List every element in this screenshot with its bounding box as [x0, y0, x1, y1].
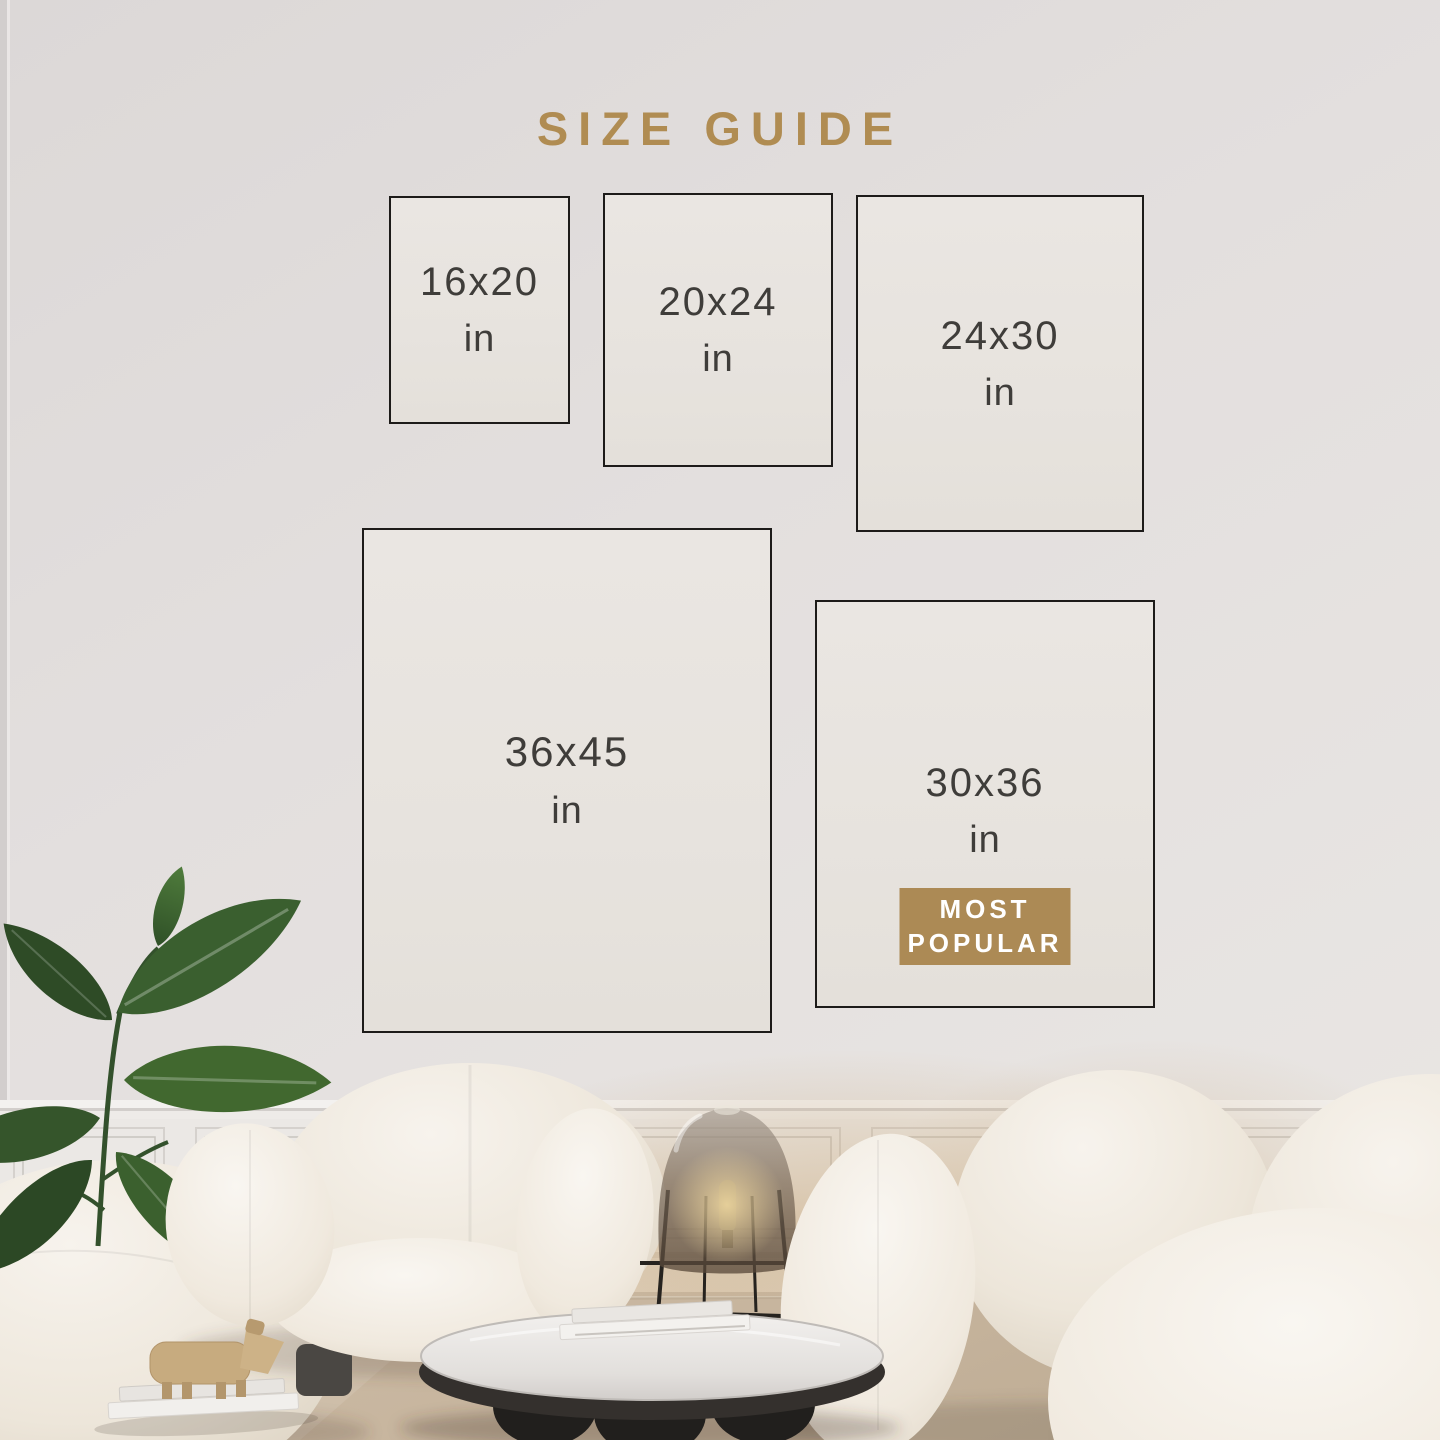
size-unit: in: [969, 820, 1001, 862]
size-unit: in: [551, 791, 583, 833]
size-dimensions: 30x36: [926, 760, 1045, 806]
size-unit: in: [984, 373, 1016, 415]
size-box-36x45: 36x45 in: [362, 528, 772, 1033]
size-box-16x20: 16x20 in: [389, 196, 570, 424]
size-dimensions: 24x30: [941, 313, 1060, 359]
badge-line-1: MOST: [939, 893, 1030, 926]
size-unit: in: [702, 339, 734, 381]
size-dimensions: 36x45: [505, 728, 629, 776]
size-box-24x30: 24x30 in: [856, 195, 1144, 532]
size-box-20x24: 20x24 in: [603, 193, 833, 467]
size-guide-image: SIZE GUIDE 16x20 in 20x24 in 24x30 in 36…: [0, 0, 1440, 1440]
wall-corner-line: [0, 0, 7, 1110]
size-dimensions: 16x20: [420, 259, 539, 305]
size-guide-title: SIZE GUIDE: [0, 101, 1440, 156]
badge-line-2: POPULAR: [907, 927, 1062, 960]
size-dimensions: 20x24: [659, 279, 778, 325]
size-box-30x36: 30x36 in MOST POPULAR: [815, 600, 1155, 1008]
size-unit: in: [464, 319, 496, 361]
most-popular-badge: MOST POPULAR: [900, 888, 1071, 965]
